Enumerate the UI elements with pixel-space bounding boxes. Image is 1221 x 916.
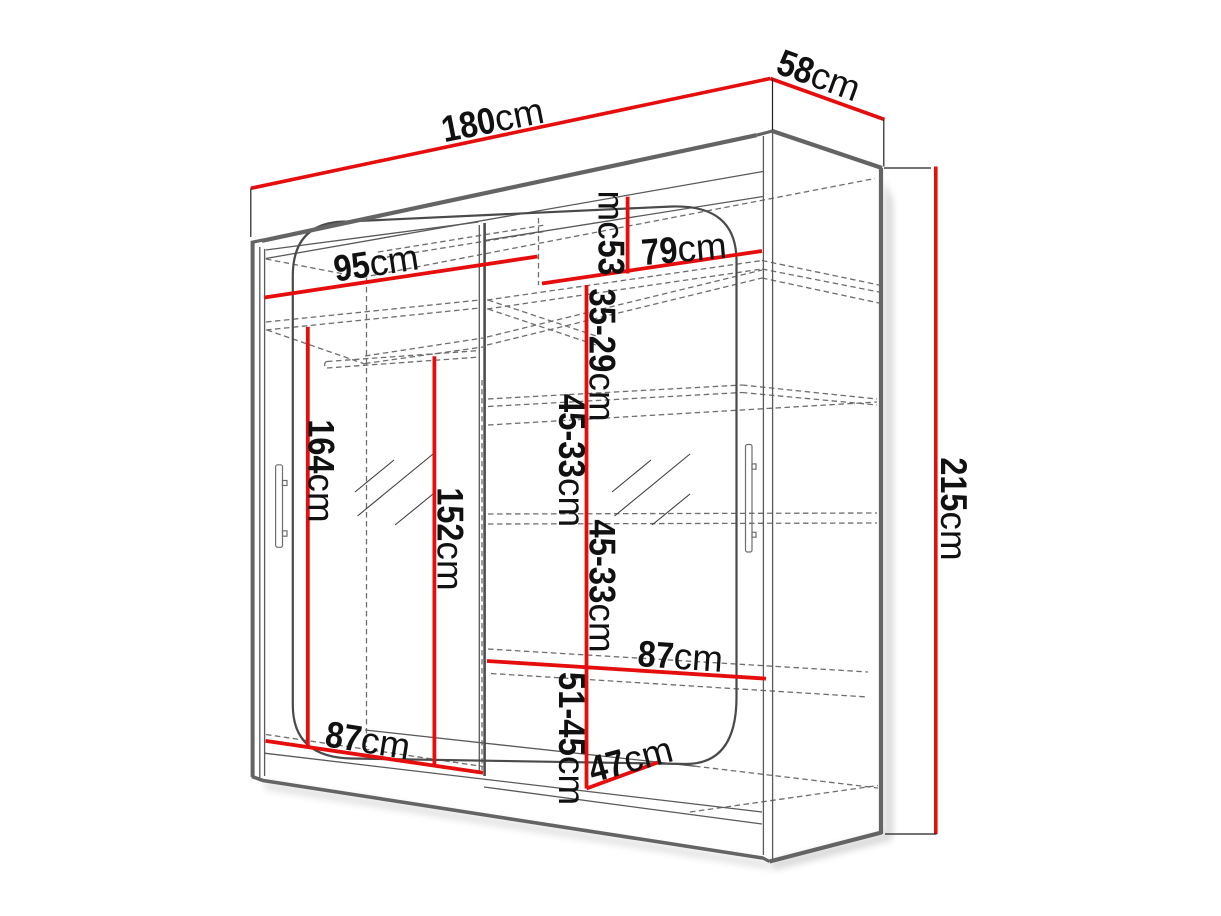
svg-text:51-45cm: 51-45cm — [552, 672, 593, 805]
svg-text:164cm: 164cm — [301, 419, 342, 522]
svg-text:215cm: 215cm — [934, 457, 975, 560]
svg-text:152cm: 152cm — [430, 487, 471, 590]
svg-text:45-33cm: 45-33cm — [552, 394, 593, 527]
svg-text:87cm: 87cm — [637, 633, 725, 680]
svg-text:45-33cm: 45-33cm — [582, 519, 623, 652]
svg-text:79cm: 79cm — [640, 224, 729, 272]
svg-text:mc53: mc53 — [591, 190, 632, 275]
